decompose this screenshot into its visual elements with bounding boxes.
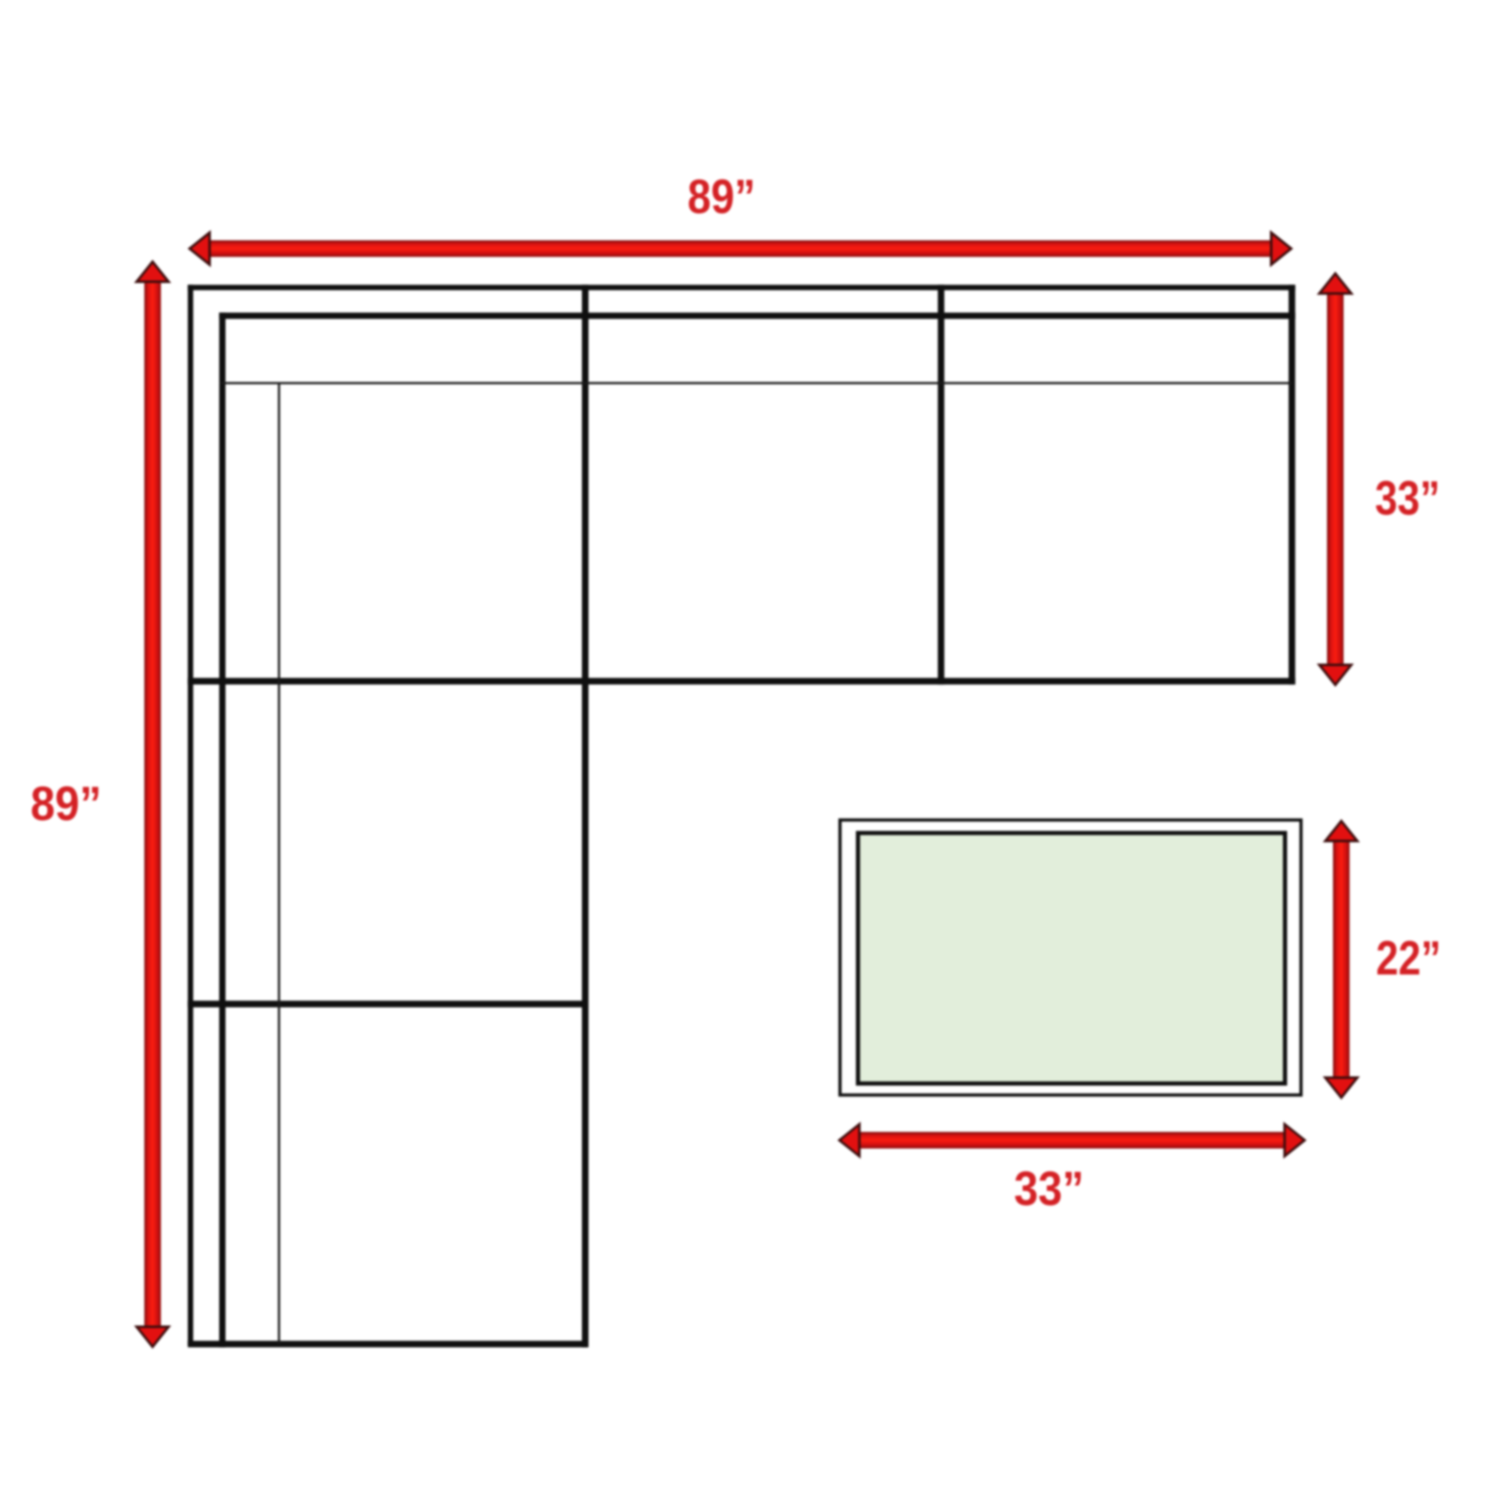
svg-text:33”: 33” (1014, 1163, 1084, 1216)
svg-text:89”: 89” (31, 778, 102, 831)
svg-text:89”: 89” (688, 171, 756, 224)
svg-text:22”: 22” (1376, 933, 1441, 986)
svg-text:33”: 33” (1375, 473, 1440, 526)
